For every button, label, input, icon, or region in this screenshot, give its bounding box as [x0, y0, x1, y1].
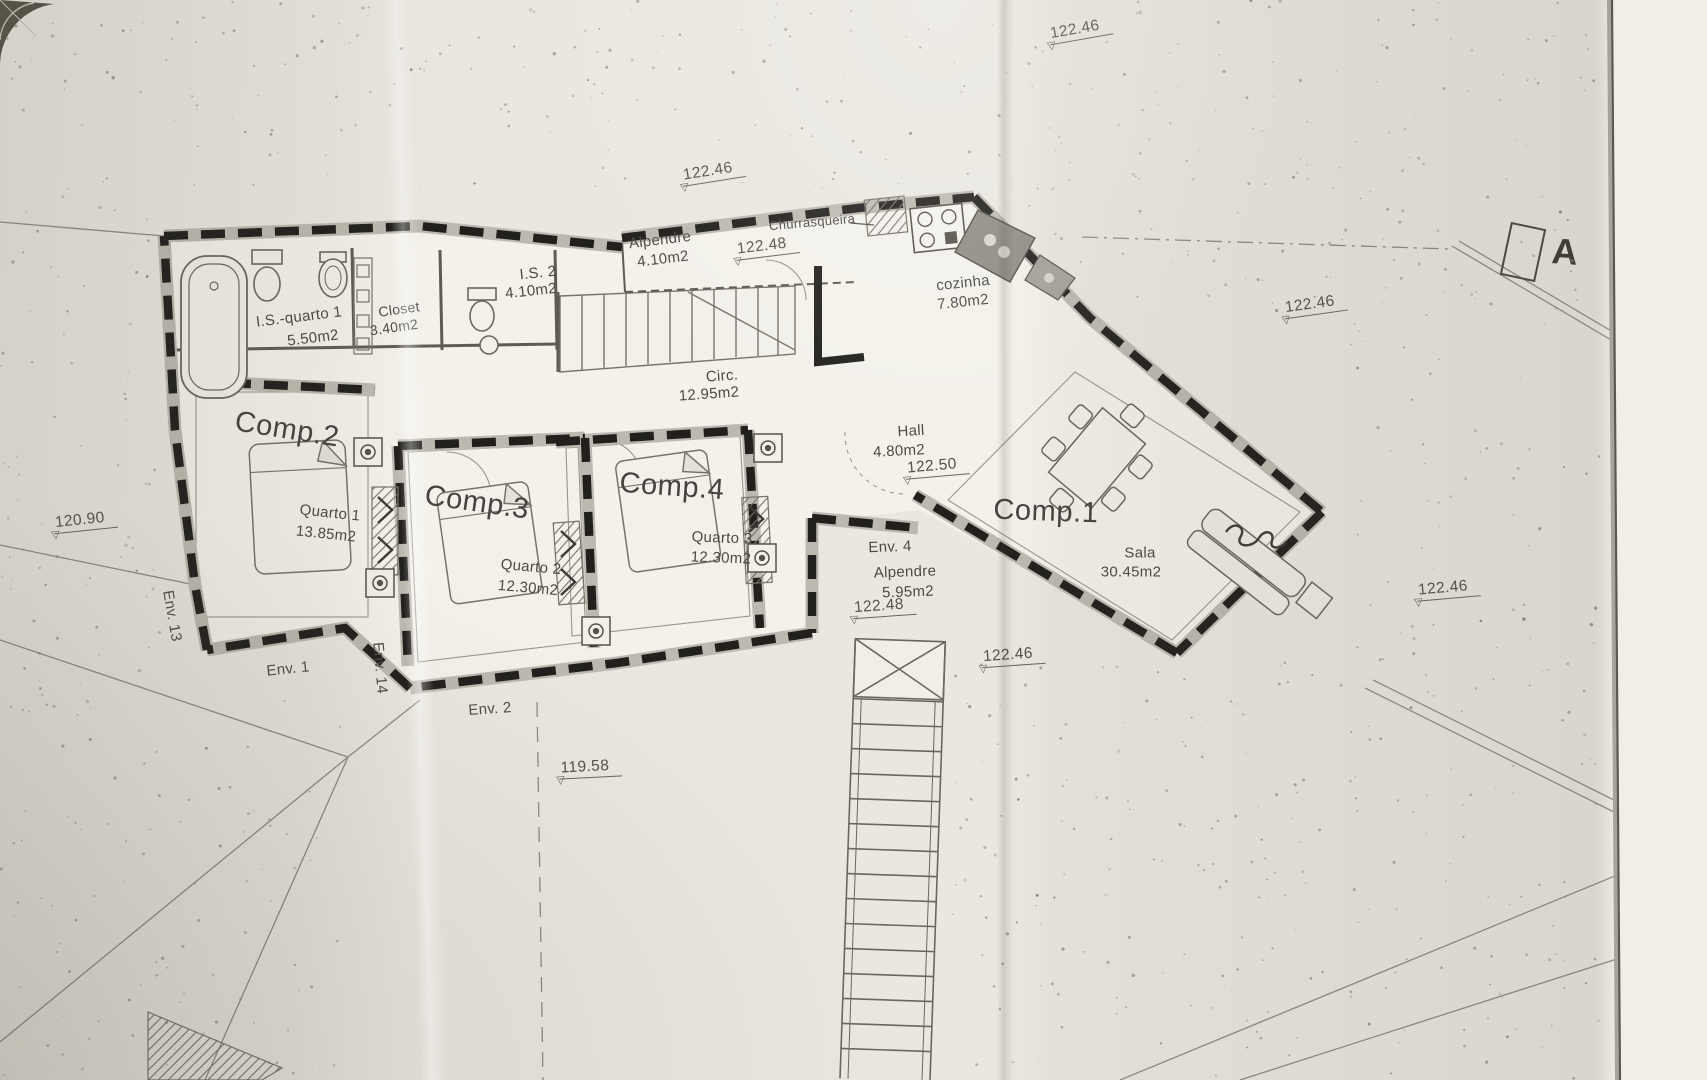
room-label: 3.40m2: [369, 316, 419, 339]
elevation-marker: 122.46▽: [980, 644, 1045, 668]
room-label: 5.50m2: [286, 326, 340, 349]
room-label: Comp.1: [993, 494, 1099, 531]
elevation-marker: 122.46▽: [1047, 15, 1113, 46]
elevation-marker: 122.46▽: [1415, 576, 1480, 601]
elevation-marker: 122.48▽: [851, 595, 916, 619]
elevation-value: 122.48: [851, 595, 916, 619]
elevation-triangle-icon: ▽: [556, 773, 565, 786]
elevation-value: 122.50: [904, 454, 969, 479]
elevation-marker: 119.58▽: [558, 756, 622, 779]
elevation-triangle-icon: ▽: [1414, 595, 1424, 609]
env-label: Env. 2: [468, 699, 512, 719]
room-label: Quarto 1: [299, 501, 361, 524]
room-label: Comp.2: [232, 405, 341, 454]
room-label: Comp.3: [423, 479, 532, 526]
elevation-marker: 122.50▽: [904, 454, 969, 479]
elevation-marker: 120.90▽: [52, 508, 118, 535]
elevation-triangle-icon: ▽: [733, 254, 743, 268]
env-label: Env. 1: [266, 658, 311, 679]
floor-plan-photo: Alpendre4.10m2Churrasqueiracozinha7.80m2…: [0, 0, 1707, 1080]
elevation-marker: 122.48▽: [734, 233, 800, 261]
room-label: 12.30m2: [497, 577, 559, 599]
room-label: 30.45m2: [1101, 564, 1161, 581]
room-label: Comp.4: [618, 467, 725, 507]
elevation-value: 122.48: [734, 233, 800, 261]
room-label: 12.30m2: [690, 548, 751, 567]
room-label: 12.95m2: [678, 383, 740, 404]
elevation-value: 122.46: [1282, 291, 1348, 320]
elevation-value: 122.46: [980, 644, 1045, 668]
env-label: Env. 14: [369, 641, 390, 694]
elevation-triangle-icon: ▽: [679, 180, 689, 194]
elevation-triangle-icon: ▽: [903, 473, 913, 487]
env-label: Env. 13: [159, 589, 185, 643]
elevation-marker: 122.46▽: [1282, 291, 1348, 320]
room-label: Alpendre: [873, 562, 936, 581]
elevation-value: 122.46: [1047, 15, 1113, 46]
elevation-triangle-icon: ▽: [1281, 313, 1291, 327]
room-label: 4.10m2: [504, 280, 557, 302]
room-label: Churrasqueira: [768, 211, 855, 233]
elevation-marker: 122.46▽: [680, 157, 746, 187]
room-label: Sala: [1124, 545, 1155, 562]
room-label: Quarto 2: [500, 556, 562, 578]
elevation-triangle-icon: ▽: [51, 528, 61, 542]
room-label: 4.10m2: [636, 247, 690, 270]
room-label: 13.85m2: [295, 522, 357, 545]
elevation-value: 122.46: [680, 157, 746, 187]
room-label: Hall: [897, 422, 925, 440]
elevation-triangle-icon: ▽: [978, 662, 987, 676]
elevation-value: 122.46: [1415, 576, 1480, 601]
elevation-triangle-icon: ▽: [849, 613, 858, 627]
elevation-value: 119.58: [558, 756, 622, 779]
elevation-value: 120.90: [52, 508, 118, 535]
plan-labels: Alpendre4.10m2Churrasqueiracozinha7.80m2…: [0, 0, 1707, 1080]
room-label: Quarto 3: [691, 528, 752, 547]
room-label: Env. 4: [868, 538, 912, 556]
room-label: 7.80m2: [936, 291, 989, 313]
